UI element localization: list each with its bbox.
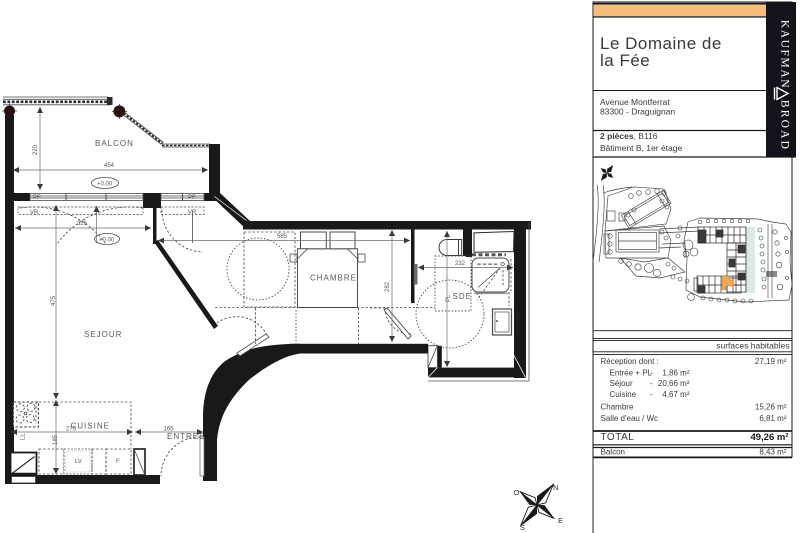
svg-text:F: F xyxy=(116,459,120,465)
svg-text:N: N xyxy=(553,483,558,492)
svg-text:83300 - Draguignan: 83300 - Draguignan xyxy=(600,107,675,117)
svg-text:20,66 m²: 20,66 m² xyxy=(658,379,690,388)
svg-text:PF: PF xyxy=(33,195,41,201)
svg-text:1,86 m²: 1,86 m² xyxy=(662,369,689,378)
svg-text:4,67 m²: 4,67 m² xyxy=(662,390,689,399)
svg-text:LL: LL xyxy=(21,433,27,440)
svg-text:Cuisine: Cuisine xyxy=(610,390,637,399)
svg-text:585: 585 xyxy=(277,234,288,240)
svg-text:Entrée + PL: Entrée + PL xyxy=(610,369,653,378)
svg-text:165: 165 xyxy=(164,427,175,433)
svg-text:232: 232 xyxy=(455,261,466,267)
svg-text:+0.00: +0.00 xyxy=(99,238,115,244)
svg-text:185: 185 xyxy=(53,434,59,445)
svg-text:VR: VR xyxy=(188,210,197,216)
svg-text:PF: PF xyxy=(188,195,196,201)
svg-text:O: O xyxy=(514,488,520,497)
svg-text:49,26 m²: 49,26 m² xyxy=(750,432,788,443)
svg-text:-: - xyxy=(650,390,653,399)
svg-text:ENTREE: ENTREE xyxy=(167,432,205,441)
svg-text:KAUFMAN: KAUFMAN xyxy=(778,20,790,89)
svg-text:275: 275 xyxy=(66,427,77,433)
svg-text:15,26 m²: 15,26 m² xyxy=(755,403,787,412)
svg-text:S: S xyxy=(520,523,525,532)
svg-text:la Fée: la Fée xyxy=(600,51,650,70)
svg-text:282: 282 xyxy=(385,281,391,292)
svg-text:Avenue Montferrat: Avenue Montferrat xyxy=(600,97,670,107)
svg-text:E: E xyxy=(558,516,563,525)
svg-text:SEJOUR: SEJOUR xyxy=(84,330,122,339)
svg-text:+0.00: +0.00 xyxy=(97,182,113,188)
svg-text:TOTAL: TOTAL xyxy=(601,432,635,443)
svg-text:CUISINE: CUISINE xyxy=(71,422,110,431)
svg-text:475: 475 xyxy=(51,295,57,306)
svg-text:Séjour: Séjour xyxy=(610,379,633,388)
svg-text:Réception dont :: Réception dont : xyxy=(601,357,659,366)
svg-text:220: 220 xyxy=(33,144,39,155)
svg-text:surfaces habitables: surfaces habitables xyxy=(716,341,789,351)
svg-text:-: - xyxy=(650,369,653,378)
svg-text:VR: VR xyxy=(30,210,39,216)
svg-text:BROAD: BROAD xyxy=(778,100,790,151)
svg-text:SDE: SDE xyxy=(453,292,472,301)
svg-text:CHAMBRE: CHAMBRE xyxy=(310,274,357,283)
svg-text:8,43 m²: 8,43 m² xyxy=(759,448,786,457)
svg-text:Bâtiment B, 1er étage: Bâtiment B, 1er étage xyxy=(600,143,682,153)
svg-text:Chambre: Chambre xyxy=(601,403,634,412)
svg-text:2 pièces, B116: 2 pièces, B116 xyxy=(600,131,658,141)
svg-text:6,81 m²: 6,81 m² xyxy=(759,414,786,423)
svg-text:454: 454 xyxy=(104,163,115,169)
svg-text:326: 326 xyxy=(77,221,88,227)
svg-text:LV: LV xyxy=(75,459,82,465)
svg-text:-: - xyxy=(650,379,653,388)
svg-text:Balcon: Balcon xyxy=(601,448,625,457)
svg-text:Salle d'eau / Wc: Salle d'eau / Wc xyxy=(601,414,659,423)
svg-text:BALCON: BALCON xyxy=(95,139,134,148)
svg-text:27,19 m²: 27,19 m² xyxy=(755,357,787,366)
